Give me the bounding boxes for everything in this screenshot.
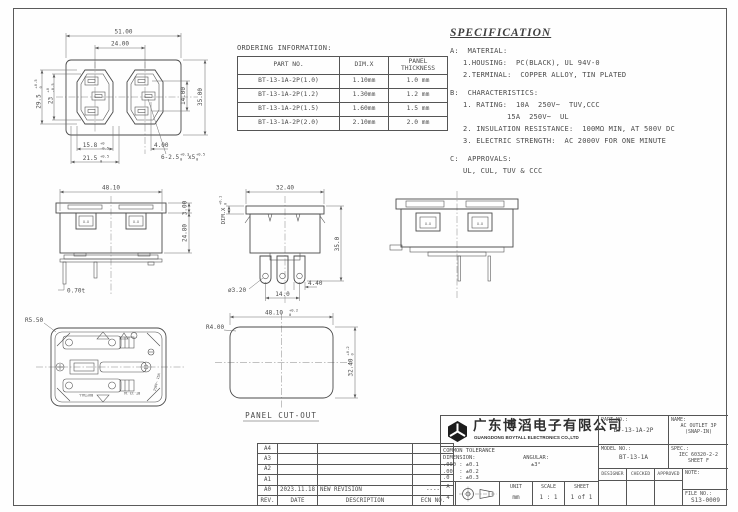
dim-width-51: 51.00 (114, 29, 132, 36)
spec-rating-ul: 15A 250V~ UL (507, 111, 728, 123)
slot-callout: 6-2.5 +0.3 0 x5 +0.5 0 (161, 152, 205, 162)
model-no-cell: MODEL NO.: BT-13-1A (598, 444, 668, 468)
ordering-header-row: PART NO. DIM.X PANELTHICKNESS (238, 57, 448, 75)
third-angle-projection-icon (459, 484, 497, 504)
side-mark-left: X.X (83, 220, 90, 224)
svg-text:29.5: 29.5 (36, 94, 43, 109)
dim-x-label: DIM.X +0.1 0 (218, 195, 228, 224)
unit-cell: UNIT mm (499, 481, 532, 506)
name-value-2: (SNAP-IN) (669, 429, 728, 435)
svg-text:0: 0 (289, 312, 292, 317)
side-view-drawing: X.X X.X 48.10 3.00 24.80 0.70t (18, 178, 223, 308)
specification-title: SPECIFICATION (450, 27, 728, 39)
company-cell: 广东博滔电子有限公司 GUANGDONG BOYTALL ELECTRONICS… (441, 416, 598, 446)
dimension-label: DIMENSION: (443, 455, 475, 461)
side-mark-right: X.X (133, 220, 140, 224)
spec-cell: SPEC.: IEC 60320-2-2 SHEET F (668, 444, 728, 468)
svg-text:0: 0 (223, 202, 228, 205)
ordering-title: ORDERING INFORMATION: (237, 44, 448, 52)
spec-rating: 1. RATING: 10A 250V~ TUV,CCC (463, 99, 728, 111)
table-row: BT-13-1A-2P(1.2)1.30mm1.2 mm (238, 89, 448, 103)
tolerance-cell: COMMON TOLERANCE DIMENSION: ANGULAR: .00… (441, 446, 598, 481)
dim-thickness: 0.70t (67, 288, 85, 295)
svg-text:15.8: 15.8 (83, 142, 98, 149)
name-label: NAME: (669, 416, 728, 423)
dim-body-height: 24.80 (182, 224, 189, 242)
file-no-cell: FILE NO.: S13-0009 (682, 489, 728, 506)
rear-mark-right: X.X (477, 222, 484, 226)
svg-text:-0.5: -0.5 (50, 83, 55, 92)
tolerance-title: COMMON TOLERANCE (443, 448, 495, 454)
scale-label: SCALE (533, 482, 564, 492)
col-dimx: DIM.X (340, 57, 389, 75)
svg-text:48.10: 48.10 (265, 310, 283, 317)
company-logo-icon (446, 420, 469, 443)
rear-view-drawing: X.X X.X (388, 183, 533, 305)
svg-text:x5: x5 (188, 154, 196, 161)
col-part-no: PART NO. (238, 57, 340, 75)
spec-insulation: 2. INSULATION RESISTANCE: 100MΩ MIN, AT … (463, 123, 728, 135)
angular-value: ±3° (531, 462, 541, 468)
spec-terminal: 2.TERMINAL: COPPER ALLOY, TIN PLATED (463, 69, 728, 81)
panel-cutout-drawing: 48.10 +0.2 0 32.40 +0.2 0 R4.00 PANEL CU… (205, 305, 405, 445)
sheet-cell: SHEET 1 of 1 (564, 481, 598, 506)
table-row: BT-13-1A-2P(2.0)2.10mm2.0 mm (238, 117, 448, 131)
side-dimensions: 48.10 3.00 24.80 0.70t (58, 185, 192, 295)
dim-height-35: 35.00 (197, 88, 204, 106)
approved-signature-cell (654, 480, 682, 506)
svg-text:0: 0 (100, 159, 103, 164)
table-row: A02023.11.18NEW REVISION---- (258, 485, 454, 495)
sheet-value: 1 of 1 (565, 492, 598, 503)
spec-electric-strength: 3. ELECTRIC STRENGTH: AC 2000V FOR ONE M… (463, 135, 728, 147)
svg-text:0: 0 (196, 157, 199, 162)
table-row: A2 (258, 464, 454, 474)
note-cell: NOTE: (682, 468, 728, 489)
dim-pins-14: 14.00 (180, 87, 187, 105)
part-no-value: BT-13-1A-2P (599, 427, 668, 434)
table-row: A3 (258, 454, 454, 464)
dim-cutout-radius: R4.00 (206, 324, 224, 331)
dim-centers-24: 24.00 (111, 41, 129, 48)
svg-text:DIM.X: DIM.X (221, 207, 227, 224)
svg-text:6-2.5: 6-2.5 (161, 154, 179, 161)
dim-flange-3: 3.00 (182, 200, 189, 215)
file-no-value: S13-0009 (683, 497, 728, 504)
projection-symbol-cell (455, 481, 499, 506)
rear-mark-left: X.X (425, 222, 432, 226)
svg-text:0: 0 (180, 157, 183, 162)
svg-text:-0.5: -0.5 (100, 146, 109, 151)
dim-center-height: 35.0 (334, 236, 341, 251)
table-row: BT-13-1A-2P(1.0)1.10mm1.0 mm (238, 75, 448, 89)
paper-size-cell: A 4 (441, 481, 455, 506)
paper-size-4: 4 (441, 493, 455, 504)
designer-signature-cell (598, 480, 626, 506)
svg-text:21.5: 21.5 (83, 155, 98, 162)
back-terminals (56, 333, 154, 393)
cutout-label: PANEL CUT-OUT (243, 411, 319, 421)
spec-approvals: UL, CUL, TUV & CCC (463, 165, 728, 177)
rear-outline: X.X X.X (390, 199, 518, 281)
cutout-dimensions: 48.10 +0.2 0 32.40 +0.2 0 R4.00 (206, 308, 358, 399)
note-label: NOTE: (683, 469, 728, 476)
scale-cell: SCALE 1 : 1 (532, 481, 564, 506)
center-view-drawing: DIM.X +0.1 0 32.40 35.0 ø3.20 14.0 4.40 (213, 178, 398, 313)
table-row: BT-13-1A-2P(1.5)1.60mm1.5 mm (238, 103, 448, 117)
dim-pin-pitch: 14.0 (275, 291, 290, 298)
checked-label-cell: CHECKED (626, 468, 654, 480)
svg-text:0: 0 (350, 353, 355, 356)
spec-material-head: A: MATERIAL: (450, 45, 728, 57)
approved-label-cell: APPROVED (654, 468, 682, 480)
dim-left-outer: 29.5 +0.5 0 (33, 79, 43, 108)
designer-label-cell: DESIGNER (598, 468, 626, 480)
title-block: 广东博滔电子有限公司 GUANGDONG BOYTALL ELECTRONICS… (440, 415, 728, 506)
sheet-label: SHEET (565, 482, 598, 492)
front-view-drawing: 51.00 24.00 35.00 14.00 29.5 +0.5 0 23 +… (28, 20, 233, 178)
table-row: A1 (258, 475, 454, 485)
name-cell: NAME: AC OUTLET 3P (SNAP-IN) (668, 416, 728, 444)
dim-corner-radius: R5.50 (25, 317, 43, 324)
svg-text:23: 23 (48, 97, 55, 105)
front-pin-slots (85, 77, 155, 115)
model-marking: BT-13-1A (124, 391, 140, 395)
scale-value: 1 : 1 (533, 492, 564, 503)
spec-label: SPEC.: (669, 445, 728, 452)
back-view-drawing: BOYTALL BT-13-1A 250V~ 15A R5.50 (8, 308, 213, 443)
unit-value: mm (500, 492, 532, 503)
part-no-cell: PART NO.: BT-13-1A-2P (598, 416, 668, 444)
spec-characteristics-head: B: CHARACTERISTICS: (450, 87, 728, 99)
unit-label: UNIT (500, 482, 532, 492)
tolerance-row-1: .000 : ±0.1 (443, 462, 479, 468)
ordering-table: PART NO. DIM.X PANELTHICKNESS BT-13-1A-2… (237, 56, 448, 131)
part-no-label: PART NO.: (599, 416, 668, 423)
engineering-drawing-page: 51.00 24.00 35.00 14.00 29.5 +0.5 0 23 +… (0, 0, 738, 512)
ordering-information: ORDERING INFORMATION: PART NO. DIM.X PAN… (237, 44, 448, 131)
rating-marking: 250V~ 15A (153, 373, 162, 392)
dim-pin-offset-4: 4.00 (154, 142, 169, 149)
dim-pin-diameter: ø3.20 (228, 287, 246, 294)
back-dimensions: R5.50 (25, 317, 56, 332)
revision-table: A4 A3 A2 A1 A02023.11.18NEW REVISION----… (257, 443, 454, 506)
table-row: A4 (258, 444, 454, 454)
model-no-label: MODEL NO.: (599, 445, 668, 452)
angular-label: ANGULAR: (523, 455, 549, 461)
front-dimensions: 51.00 24.00 35.00 14.00 29.5 +0.5 0 23 +… (33, 29, 208, 165)
model-no-value: BT-13-1A (599, 454, 668, 461)
spec-housing: 1.HOUSING: PC(BLACK), UL 94V-0 (463, 57, 728, 69)
company-name-en: GUANGDONG BOYTALL ELECTRONICS CO.,LTD (474, 435, 579, 441)
spec-value-2: SHEET F (669, 458, 728, 464)
dim-left-inner: 23 +0 -0.5 (45, 83, 55, 104)
brand-marking: BOYTALL (79, 393, 93, 397)
col-panel-thickness: PANELTHICKNESS (389, 57, 448, 75)
specification-section: SPECIFICATION A: MATERIAL: 1.HOUSING: PC… (450, 27, 728, 177)
revision-footer-row: REV.DATEDESCRIPTIONECN NO. (258, 495, 454, 505)
paper-size-a: A (441, 482, 455, 493)
dim-side-width: 48.10 (102, 185, 120, 192)
front-outline (66, 60, 181, 135)
svg-text:PANEL CUT-OUT: PANEL CUT-OUT (245, 411, 317, 420)
tolerance-row-2: .00 : ±0.2 (443, 469, 479, 475)
dim-center-width: 32.40 (276, 185, 294, 192)
svg-text:32.40: 32.40 (348, 358, 355, 376)
spec-approvals-head: C: APPROVALS: (450, 153, 728, 165)
dim-pin-width: 4.40 (308, 280, 323, 287)
file-no-label: FILE NO.: (683, 490, 728, 497)
checked-signature-cell (626, 480, 654, 506)
